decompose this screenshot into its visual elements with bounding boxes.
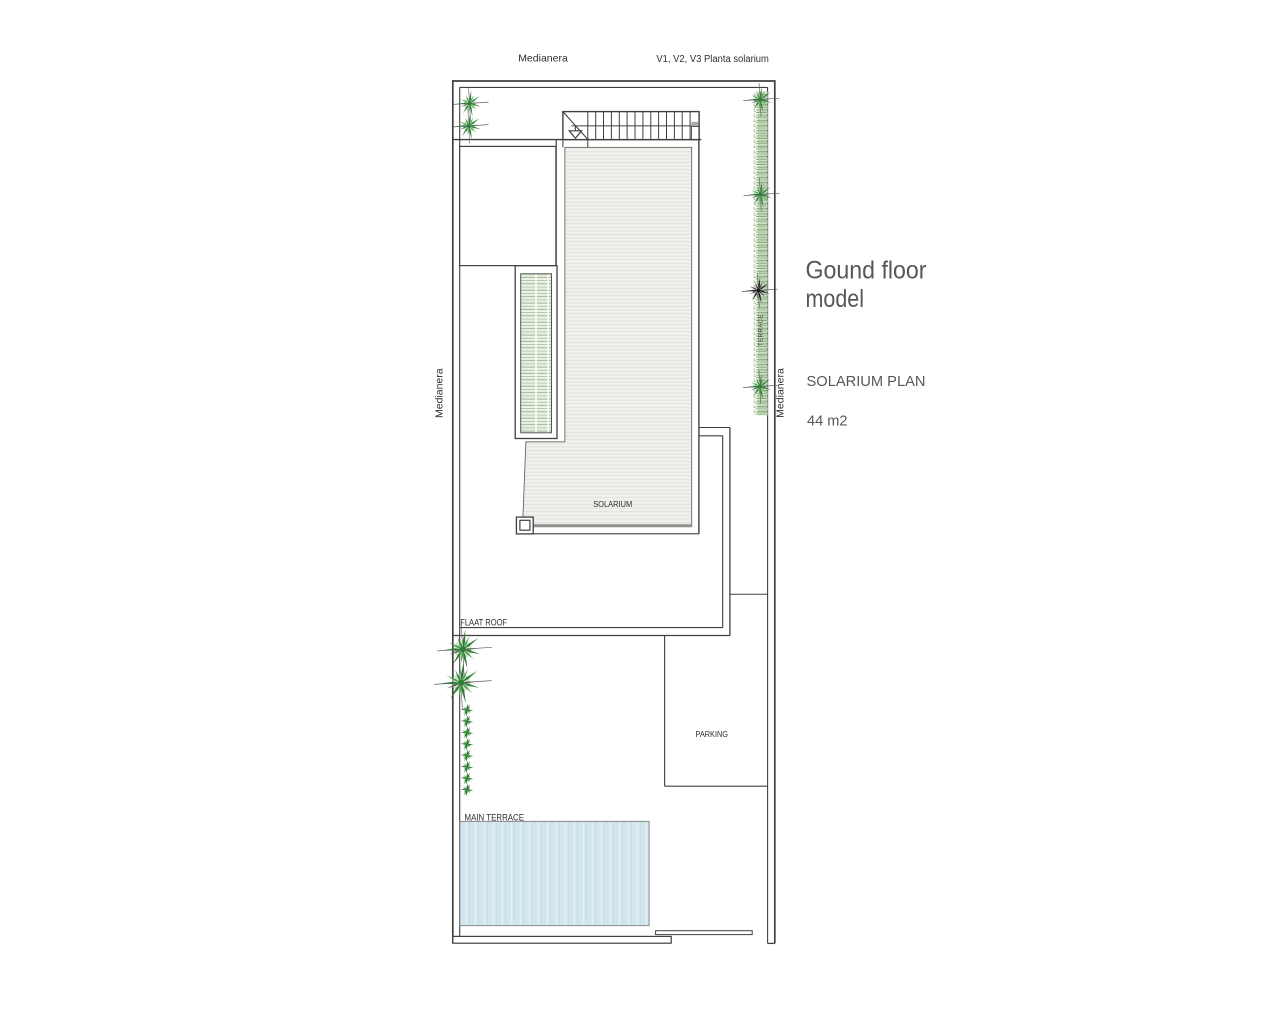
- svg-text:44 m2: 44 m2: [807, 413, 848, 430]
- svg-text:PARKING: PARKING: [696, 730, 729, 739]
- svg-text:SOLARIUM PLAN: SOLARIUM PLAN: [807, 373, 926, 390]
- svg-text:V1, V2, V3 Planta solarium: V1, V2, V3 Planta solarium: [656, 54, 769, 65]
- svg-text:SOLARIUM: SOLARIUM: [593, 500, 632, 509]
- svg-text:model: model: [806, 285, 865, 313]
- svg-text:TERRACE: TERRACE: [758, 314, 765, 346]
- svg-text:Medianera: Medianera: [434, 368, 446, 418]
- svg-text:Medianera: Medianera: [518, 53, 568, 65]
- svg-text:MAIN TERRACE: MAIN TERRACE: [465, 813, 525, 823]
- svg-text:Gound floor: Gound floor: [806, 257, 927, 285]
- svg-text:Medianera: Medianera: [775, 368, 787, 418]
- svg-text:FLAAT ROOF: FLAAT ROOF: [460, 618, 507, 628]
